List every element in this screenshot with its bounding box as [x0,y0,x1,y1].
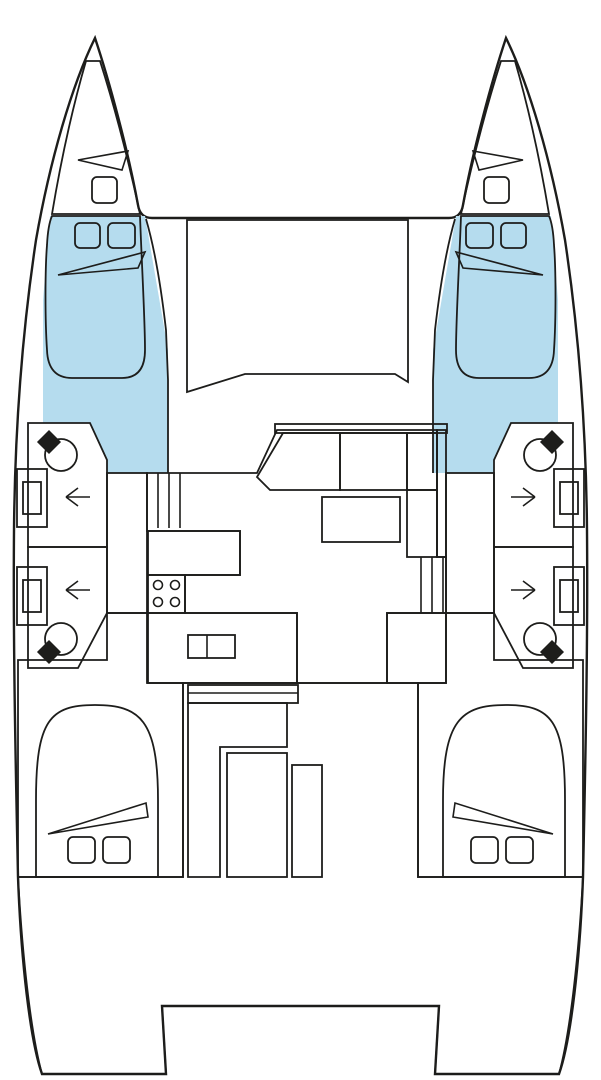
hull-silhouette [14,38,587,1074]
boat-floor-plan [0,0,601,1080]
